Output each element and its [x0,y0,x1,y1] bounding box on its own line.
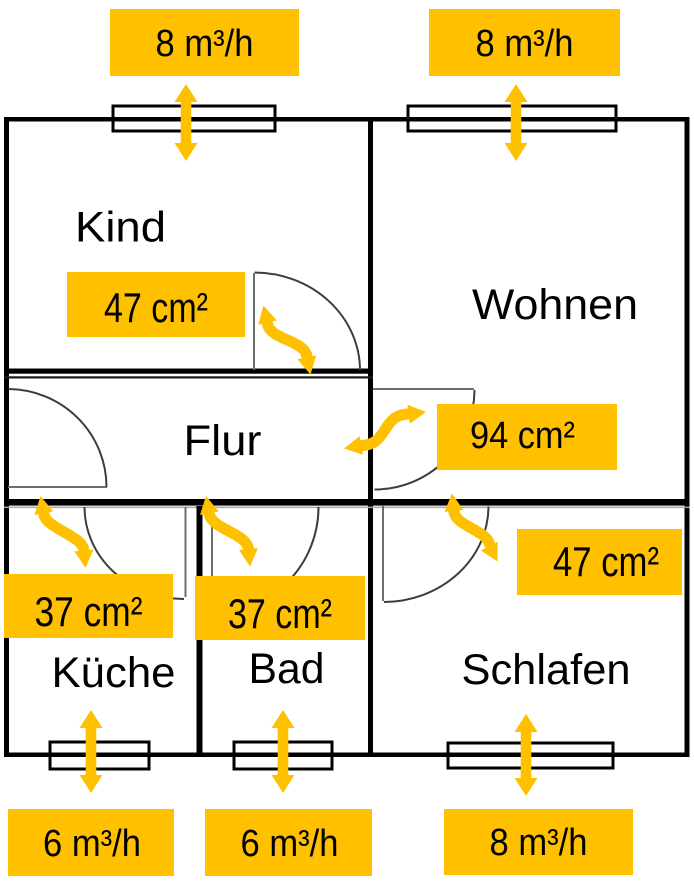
svg-text:47 cm²: 47 cm² [553,538,659,585]
svg-text:8 m³/h: 8 m³/h [156,23,254,65]
svg-text:8 m³/h: 8 m³/h [476,23,574,65]
svg-text:94 cm²: 94 cm² [470,415,575,457]
svg-text:37 cm²: 37 cm² [35,588,143,635]
svg-text:Kind: Kind [75,204,166,252]
svg-text:8 m³/h: 8 m³/h [490,822,588,864]
svg-text:6 m³/h: 6 m³/h [241,823,339,865]
svg-text:6 m³/h: 6 m³/h [43,823,141,865]
svg-text:Wohnen: Wohnen [472,281,638,329]
svg-text:Flur: Flur [184,417,262,465]
svg-text:47 cm²: 47 cm² [104,284,208,331]
svg-text:Bad: Bad [249,645,325,693]
svg-text:Küche: Küche [52,649,176,697]
svg-text:37 cm²: 37 cm² [228,590,332,637]
svg-text:Schlafen: Schlafen [462,646,631,694]
